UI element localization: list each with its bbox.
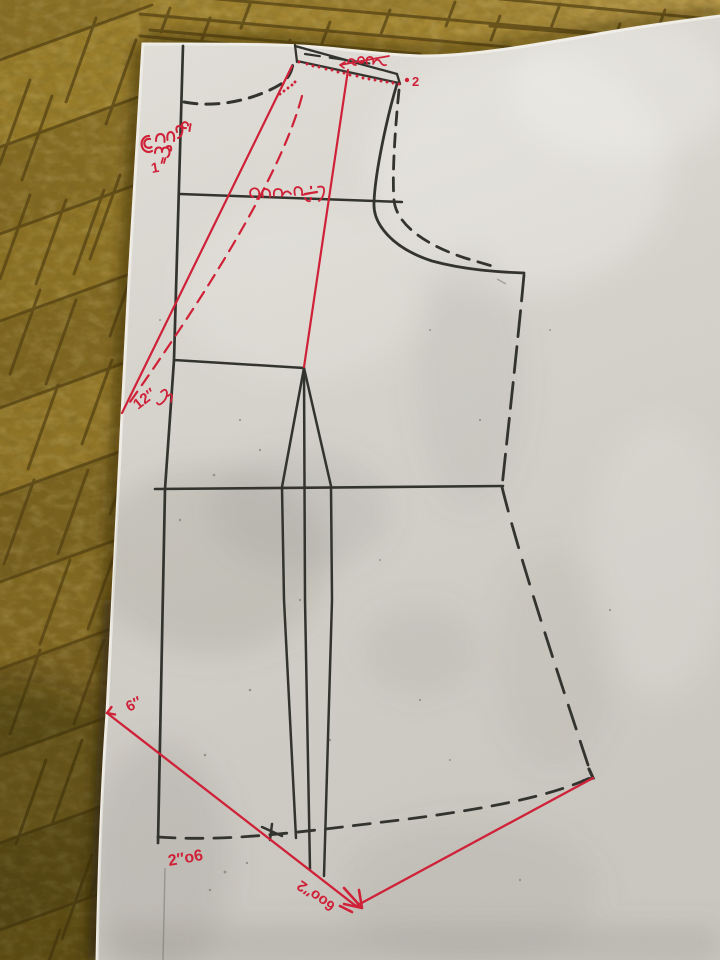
svg-text:2: 2 <box>412 74 419 89</box>
